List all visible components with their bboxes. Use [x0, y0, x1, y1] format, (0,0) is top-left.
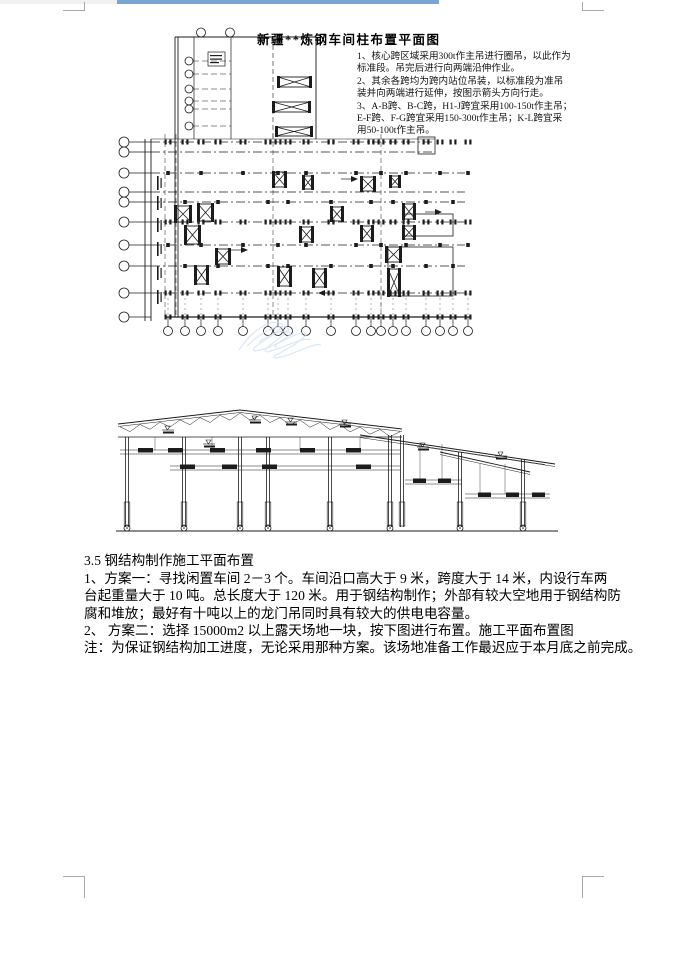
body-line: 注：为保证钢结构加工进度，无论采用那种方案。该场地准备工作最迟应于本月底之前完成…: [84, 639, 604, 656]
section-heading: 3.5 钢结构制作施工平面布置: [84, 552, 604, 569]
body-text-block: 3.5 钢结构制作施工平面布置 1、方案一：寻找闲置车间 2－3 个。车间沿口高…: [84, 552, 604, 656]
text-boundary-mark-top-right: [582, 2, 604, 11]
document-page: 新疆**炼钢车间柱布置平面图 1、核心跨区域采用300t作主吊进行圈吊，以此作为…: [0, 0, 682, 961]
body-line: 2、 方案二：选择 15000m2 以上露天场地一块，按下图进行布置。施工平面布…: [84, 622, 604, 639]
body-line: 台起重量大于 10 吨。总长度大于 120 米。用于钢结构制作；外部有较大空地用…: [84, 587, 604, 604]
body-line: 腐和堆放；最好有十吨以上的龙门吊同时具有较大的供电电容量。: [84, 605, 604, 622]
text-boundary-mark-bottom-left: [63, 876, 85, 898]
window-top-strip-blue: [117, 0, 439, 4]
body-line: 1、方案一：寻找闲置车间 2－3 个。车间沿口高大于 9 米，跨度大于 14 米…: [84, 570, 604, 587]
text-boundary-mark-bottom-right: [582, 876, 604, 898]
watermark-scribble: [225, 312, 335, 367]
workshop-elevation-drawing: [110, 402, 560, 542]
text-boundary-mark-top-left: [63, 2, 85, 11]
window-top-strip-gray: [0, 0, 117, 4]
column-layout-plan-drawing: [113, 26, 475, 340]
